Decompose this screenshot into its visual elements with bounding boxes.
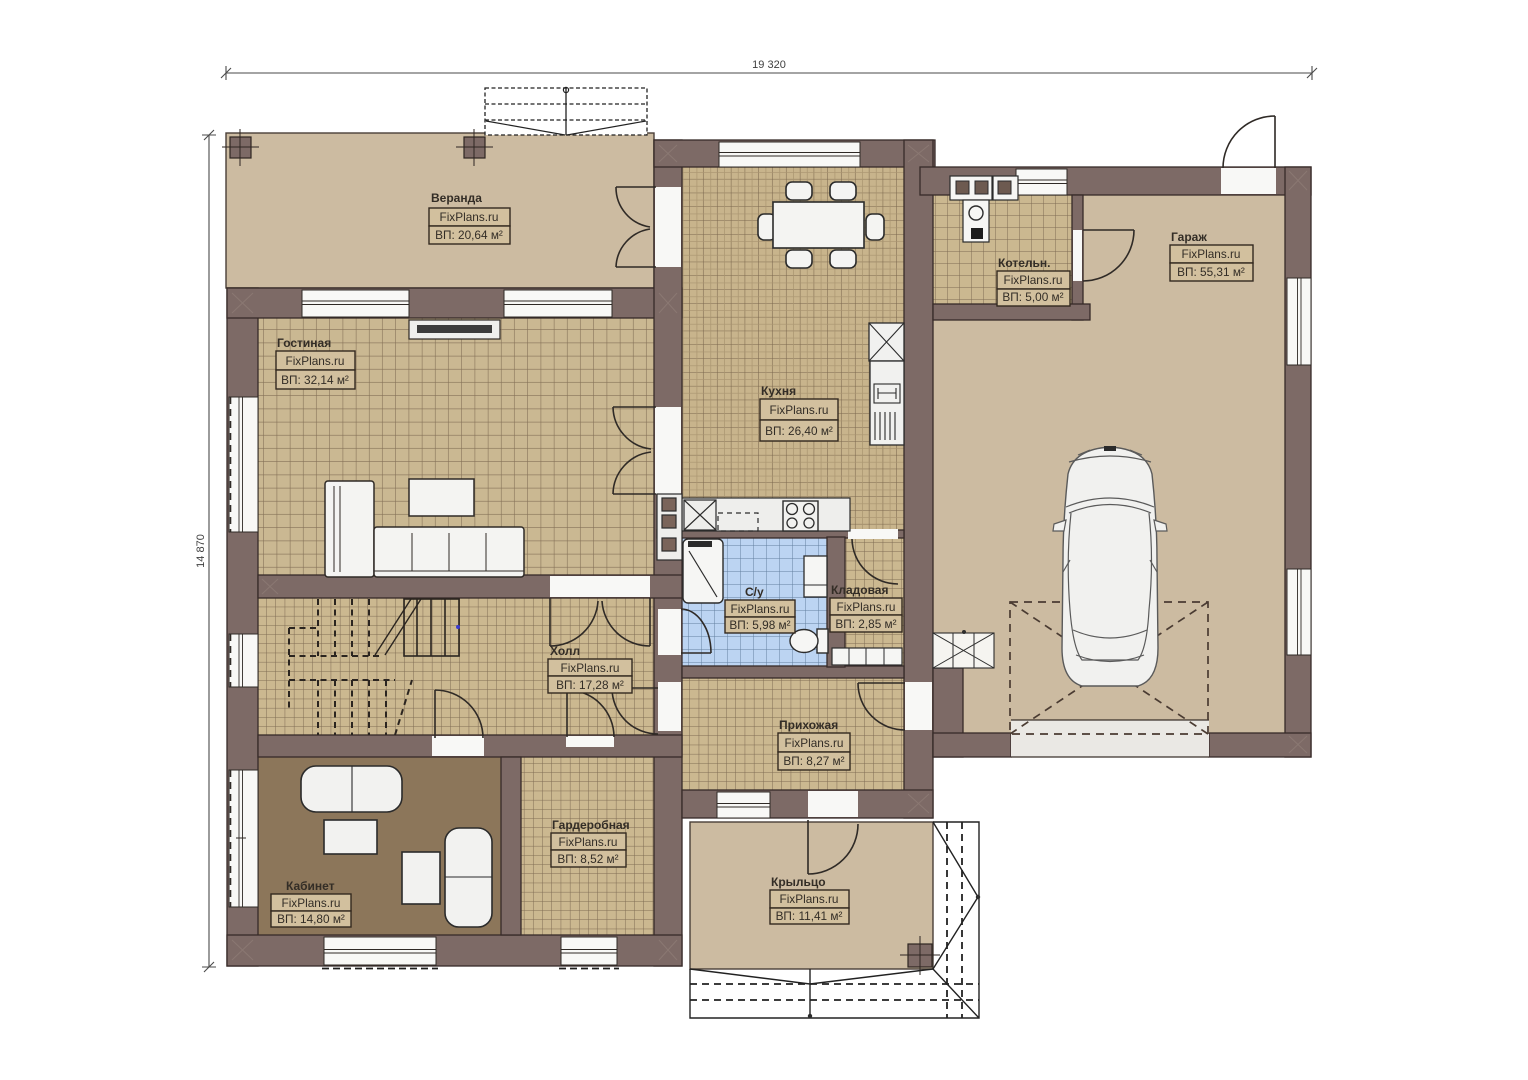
- svg-text:ВП: 55,31 м²: ВП: 55,31 м²: [1177, 265, 1245, 279]
- svg-text:С/у: С/у: [745, 585, 764, 599]
- svg-text:FixPlans.ru: FixPlans.ru: [784, 736, 843, 750]
- svg-text:FixPlans.ru: FixPlans.ru: [281, 896, 340, 910]
- svg-text:ВП: 5,98 м²: ВП: 5,98 м²: [729, 618, 790, 632]
- svg-text:Крыльцо: Крыльцо: [771, 875, 826, 889]
- svg-text:19 320: 19 320: [752, 59, 786, 71]
- svg-text:ВП: 17,28 м²: ВП: 17,28 м²: [556, 678, 624, 692]
- svg-text:Кабинет: Кабинет: [286, 879, 335, 893]
- svg-text:FixPlans.ru: FixPlans.ru: [730, 602, 789, 616]
- svg-text:Гардеробная: Гардеробная: [552, 818, 630, 832]
- svg-text:ВП: 26,40 м²: ВП: 26,40 м²: [765, 424, 833, 438]
- svg-text:FixPlans.ru: FixPlans.ru: [1181, 247, 1240, 261]
- svg-text:FixPlans.ru: FixPlans.ru: [836, 600, 895, 614]
- svg-text:Кухня: Кухня: [761, 384, 796, 398]
- svg-text:Котельн.: Котельн.: [998, 256, 1051, 270]
- svg-text:ВП: 8,52 м²: ВП: 8,52 м²: [557, 852, 618, 866]
- svg-text:ВП: 2,85 м²: ВП: 2,85 м²: [835, 617, 896, 631]
- svg-text:Гостиная: Гостиная: [277, 336, 331, 350]
- svg-text:FixPlans.ru: FixPlans.ru: [779, 892, 838, 906]
- svg-text:FixPlans.ru: FixPlans.ru: [560, 661, 619, 675]
- svg-text:Гараж: Гараж: [1171, 230, 1207, 244]
- svg-text:FixPlans.ru: FixPlans.ru: [439, 210, 498, 224]
- svg-text:FixPlans.ru: FixPlans.ru: [1003, 273, 1062, 287]
- svg-text:Холл: Холл: [550, 644, 580, 658]
- svg-text:ВП: 14,80 м²: ВП: 14,80 м²: [277, 912, 345, 926]
- svg-text:FixPlans.ru: FixPlans.ru: [769, 403, 828, 417]
- svg-text:ВП: 8,27 м²: ВП: 8,27 м²: [783, 754, 844, 768]
- svg-text:Веранда: Веранда: [431, 191, 482, 205]
- svg-text:14 870: 14 870: [195, 534, 207, 568]
- svg-text:ВП: 32,14 м²: ВП: 32,14 м²: [281, 373, 349, 387]
- svg-text:ВП: 5,00 м²: ВП: 5,00 м²: [1002, 290, 1063, 304]
- svg-text:FixPlans.ru: FixPlans.ru: [558, 835, 617, 849]
- svg-text:ВП: 20,64 м²: ВП: 20,64 м²: [435, 228, 503, 242]
- svg-text:ВП: 11,41 м²: ВП: 11,41 м²: [776, 909, 843, 923]
- svg-text:Кладовая: Кладовая: [831, 583, 888, 597]
- svg-text:FixPlans.ru: FixPlans.ru: [285, 354, 344, 368]
- svg-text:Прихожая: Прихожая: [779, 718, 838, 732]
